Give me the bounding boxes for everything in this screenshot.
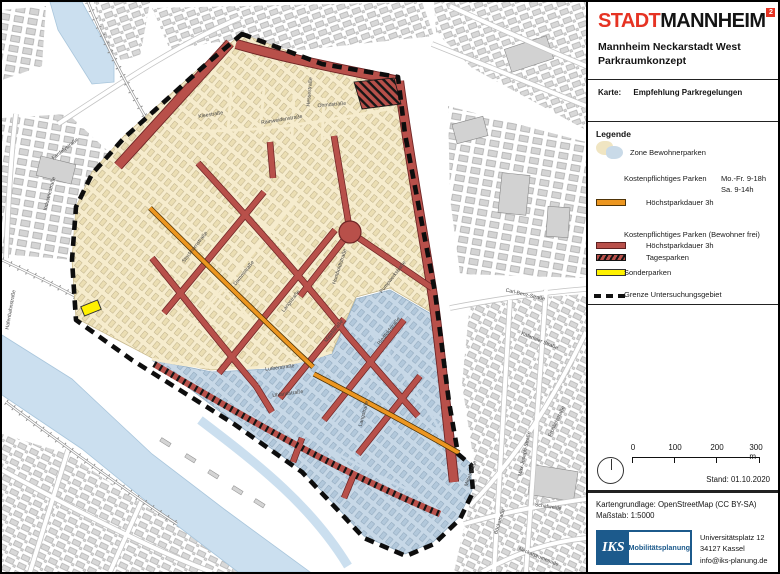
logo-stadt: STADT bbox=[598, 10, 660, 32]
divider-thick bbox=[588, 490, 778, 493]
divider bbox=[588, 121, 778, 122]
map-canvas: IndustriestraßeFardelystraßeHafenbahnstr… bbox=[2, 2, 586, 572]
map-title-line1: Mannheim Neckarstadt West bbox=[598, 41, 741, 55]
legend-paid-sub: Höchstparkdauer 3h bbox=[646, 198, 714, 207]
north-arrow-icon bbox=[597, 457, 624, 484]
area-tagesparken bbox=[354, 78, 401, 109]
zone-blob-blue bbox=[606, 146, 623, 159]
credit-source: Kartengrundlage: OpenStreetMap (CC BY-SA… bbox=[596, 500, 757, 509]
scale-bar-line bbox=[632, 457, 760, 458]
scale-bar: 0 100 200 300 m bbox=[632, 443, 762, 469]
publisher-address: Universitätsplatz 12 34127 Kassel info@i… bbox=[700, 532, 768, 566]
legend-paid-res-sub1: Höchstparkdauer 3h bbox=[646, 241, 714, 250]
credit-scale: Maßstab: 1:5000 bbox=[596, 511, 655, 520]
map-title: Mannheim Neckarstadt West Parkraumkonzep… bbox=[598, 41, 741, 68]
karte-label: Karte: bbox=[598, 88, 621, 97]
scale-tick-label: 300 m bbox=[749, 443, 762, 461]
legend-swatch-red bbox=[596, 242, 626, 249]
address-line3: info@iks-planung.de bbox=[700, 555, 768, 566]
traffic-circle bbox=[339, 221, 361, 243]
legend-swatch-hatched bbox=[596, 254, 626, 261]
stadt-mannheim-logo: STADTMANNHEIM2 bbox=[598, 10, 775, 33]
legend-special-label: Sonderparken bbox=[624, 268, 671, 277]
iks-logo-text: Mobilitätsplanung bbox=[629, 532, 691, 563]
legend-boundary-label: Grenze Untersuchungsgebiet bbox=[624, 290, 722, 299]
legend-paid-header: Kostenpflichtiges Parken bbox=[624, 174, 707, 183]
divider bbox=[588, 304, 778, 305]
legend-paid-res-header: Kostenpflichtiges Parken (Bewohner frei) bbox=[624, 230, 760, 239]
map-sheet: IndustriestraßeFardelystraßeHafenbahnstr… bbox=[0, 0, 780, 574]
legend-swatch-yellow bbox=[596, 269, 626, 276]
scale-tick-label: 0 bbox=[631, 443, 635, 452]
legend-paid-res-sub2: Tagesparken bbox=[646, 253, 689, 262]
legend-paid-time2: Sa. 9-14h bbox=[721, 185, 754, 194]
stand-date: Stand: 01.10.2020 bbox=[706, 475, 770, 484]
title-legend-panel: STADTMANNHEIM2 Mannheim Neckarstadt West… bbox=[586, 2, 778, 572]
map-title-line2: Parkraumkonzept bbox=[598, 55, 741, 69]
address-line2: 34127 Kassel bbox=[700, 543, 768, 554]
legend-paid-time1: Mo.-Fr. 9-18h bbox=[721, 174, 766, 183]
logo-mannheim: MANNHEIM bbox=[660, 10, 765, 32]
scale-tick-label: 200 bbox=[710, 443, 723, 452]
scale-tick-label: 100 bbox=[668, 443, 681, 452]
logo-superscript: 2 bbox=[766, 8, 775, 17]
legend-zone-label: Zone Bewohnerparken bbox=[630, 148, 706, 157]
legend-swatch-dashed bbox=[594, 294, 626, 298]
legend-swatch-zone bbox=[596, 141, 626, 161]
karte-value: Empfehlung Parkregelungen bbox=[633, 88, 742, 97]
iks-logo-mark: IKS bbox=[598, 532, 629, 563]
address-line1: Universitätsplatz 12 bbox=[700, 532, 768, 543]
karte-row: Karte: Empfehlung Parkregelungen bbox=[598, 88, 742, 97]
legend-heading: Legende bbox=[596, 129, 631, 139]
map-area: IndustriestraßeFardelystraßeHafenbahnstr… bbox=[2, 2, 586, 572]
iks-logo: IKS Mobilitätsplanung bbox=[596, 530, 692, 565]
legend-swatch-paid-orange bbox=[596, 199, 626, 206]
divider bbox=[588, 79, 778, 80]
